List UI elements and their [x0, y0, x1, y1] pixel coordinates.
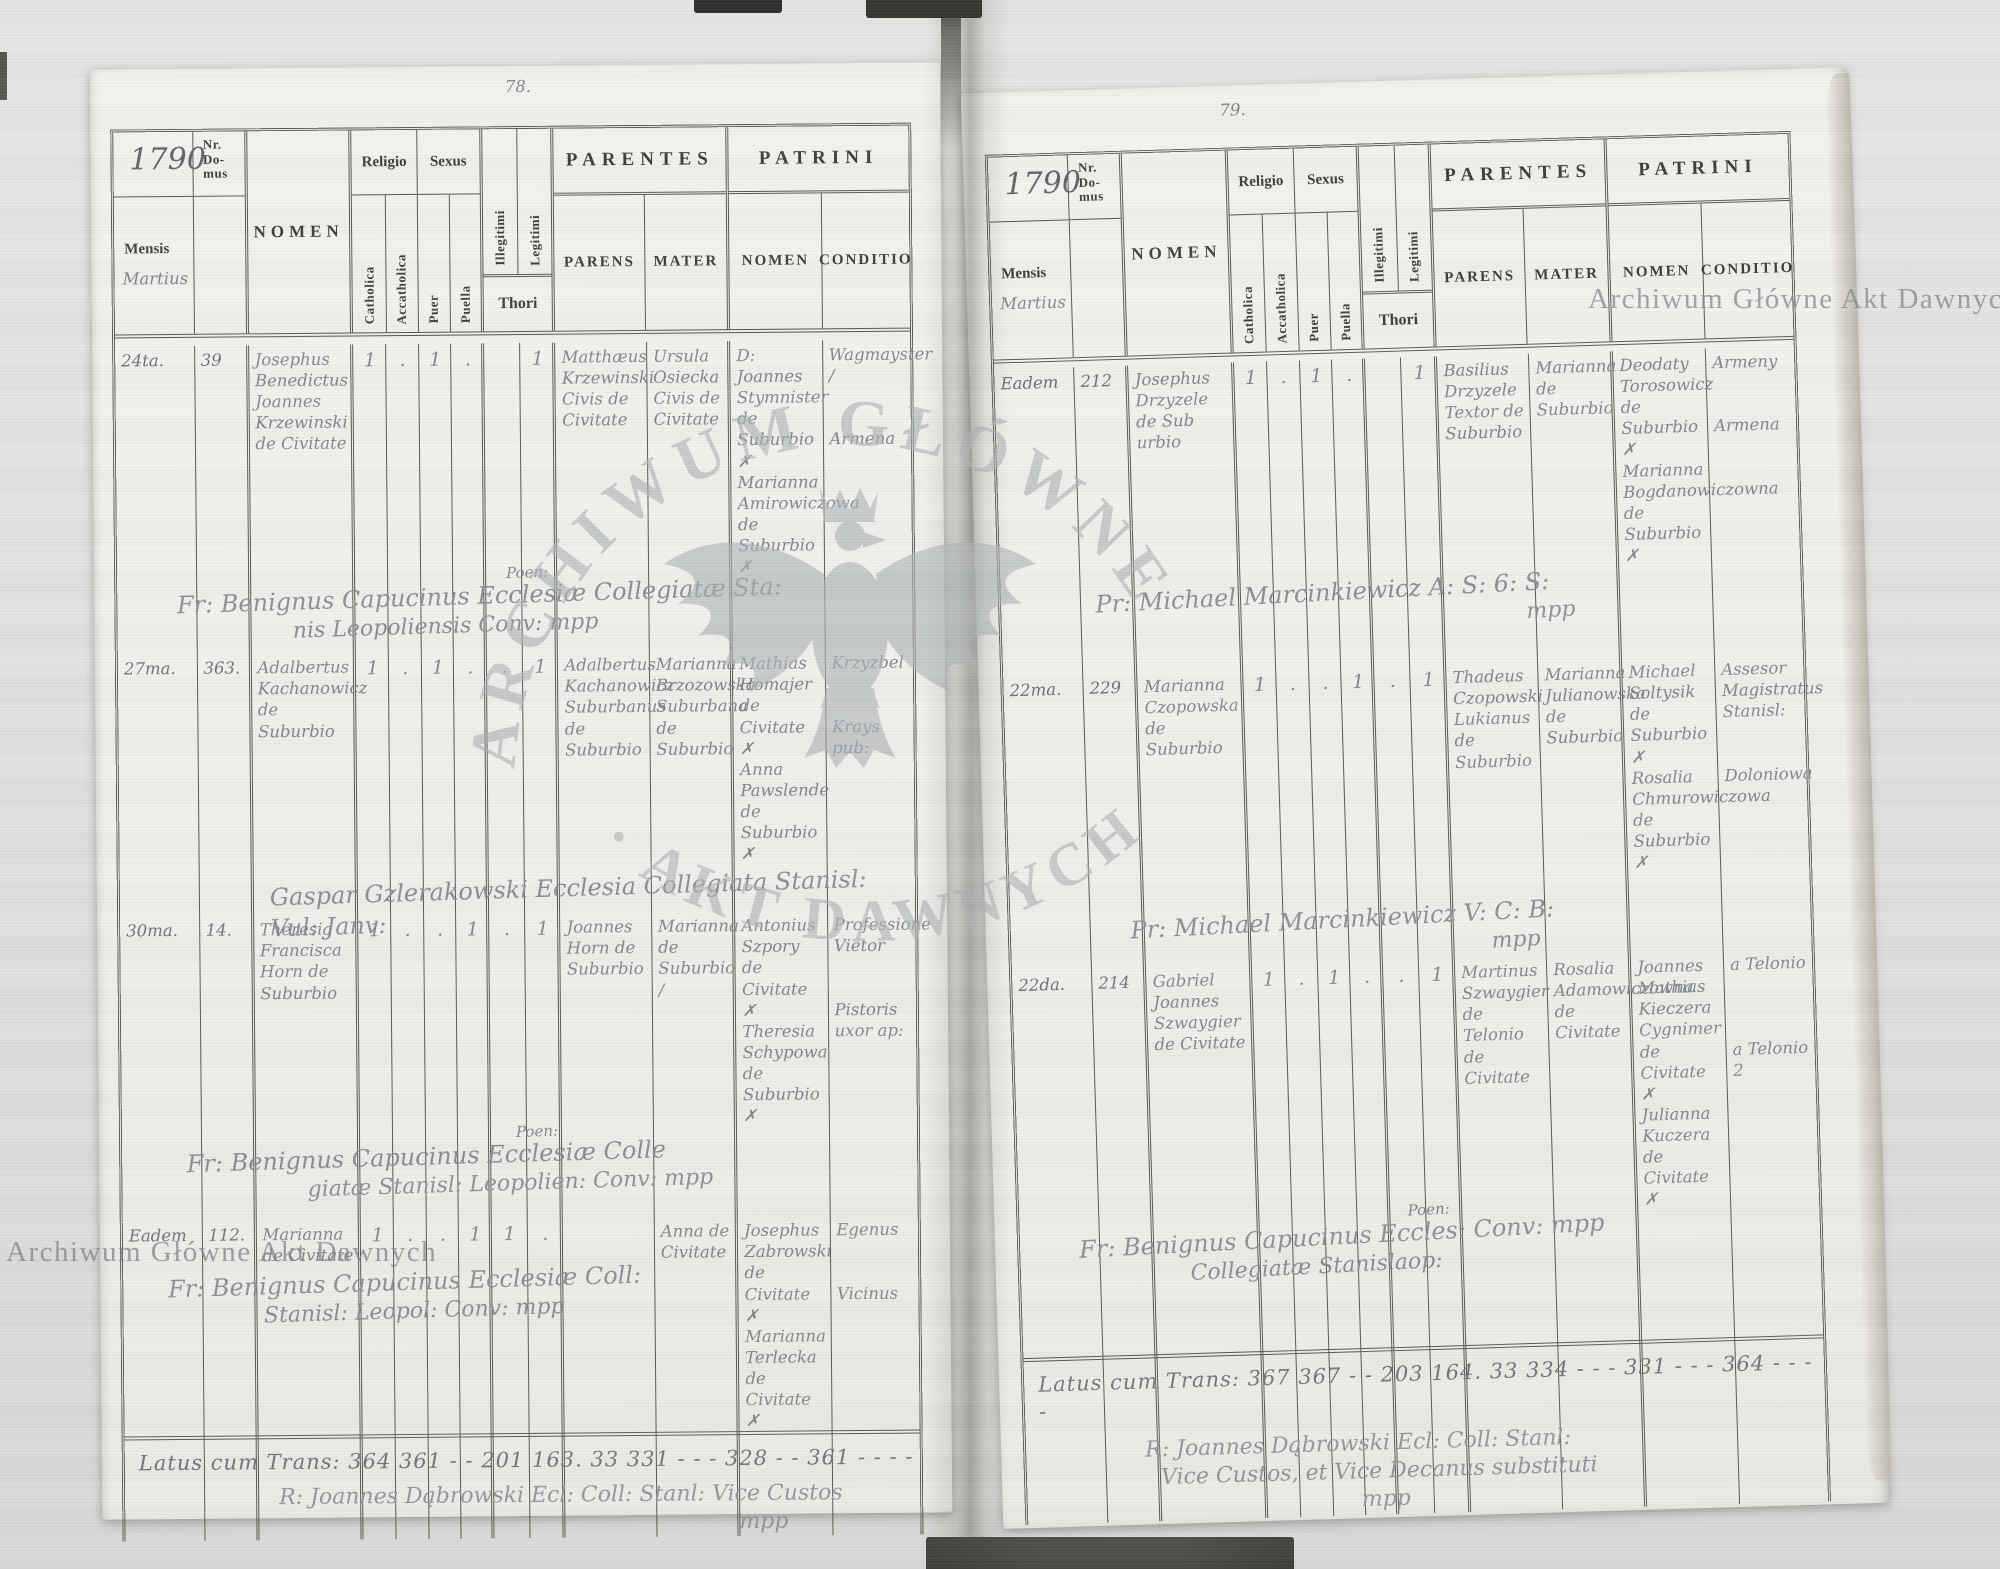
cell-date: 27ma. [118, 654, 199, 877]
cell-illegitimi [484, 343, 522, 580]
binding-clamp-icon [866, 0, 982, 18]
patrini-nomen-label: NOMEN [1623, 263, 1691, 282]
paper-deckle-edge [1825, 73, 1893, 1480]
scan-edge-mark [0, 52, 7, 100]
legitimi-label: Legitimi [1406, 231, 1424, 282]
cell-legitimi: 1 [525, 913, 563, 1138]
header-patrini-group: PATRINI NOMEN CONDITIO [1607, 134, 1794, 341]
cell-nr: 14. [200, 916, 256, 1141]
table-header: 1790 Mensis Martius Nr. Do- mus NOMEN Re… [988, 134, 1794, 364]
latus-summary: Latus cum Trans: 367 367 - - 203 164. 33… [1023, 1335, 1828, 1525]
cell-patrini-nomen: Antonius Szpory de Civitate ✗ Theresia S… [735, 911, 829, 1137]
header-nr-domus: Nr. Do- mus [193, 131, 249, 333]
cell-patrini-nomen: Deodaty Torosowicz de Suburbio ✗ Mariann… [1613, 348, 1712, 566]
accatholica-label: Accatholica [393, 253, 410, 324]
cell-mater: Rosalia Adamowiczowna de Civitate [1547, 953, 1639, 1213]
conditio-label: CONDITIO [819, 252, 913, 270]
cell-illegitimi: . [489, 913, 527, 1138]
cell-mater: Anna de Civitate [655, 1216, 740, 1432]
right-page: 79. 1790 Mensis Martius Nr. Do- mus NOME… [961, 67, 1889, 1529]
cell-parens: Matthæus Krzewinski Civis de Civitate [555, 342, 648, 579]
cell-nr: 229 [1083, 673, 1144, 910]
mater-label: MATER [653, 253, 718, 271]
cell-legitimi: 1 [520, 343, 558, 580]
patrini-nomen-label: NOMEN [742, 252, 810, 270]
cell-accatholica: . [389, 652, 424, 874]
month-handwritten: Martius [122, 268, 193, 290]
cell-date: Eadem [994, 367, 1080, 584]
table-header: 1790 Mensis Martius Nr. Do- mus NOMEN Re… [113, 126, 910, 339]
month-handwritten: Martius [1000, 291, 1072, 314]
cell-mater: Marianna Julianowska de Suburbio [1538, 658, 1629, 895]
cell-parens: Martinus Szwaygier de Telonio de Civitat… [1455, 956, 1555, 1216]
cell-parens: Joannes Horn de Suburbio [560, 912, 653, 1138]
cell-puer: 1 [419, 344, 454, 580]
left-page: 78. 1790 Mensis Martius Nr. Do- mus NOME… [90, 62, 953, 1519]
cell-nr: 214 [1092, 967, 1154, 1226]
cell-catholica: 1 [354, 344, 389, 580]
cell-puella: 1 [459, 1218, 493, 1433]
puer-label: Puer [1306, 313, 1323, 342]
header-parentes-group: PARENTES PARENS MATER [1431, 139, 1613, 346]
latus-summary: Latus cum Trans: 364 361 - - 201 163. 33… [125, 1430, 921, 1542]
cell-illegitimi: 1 [492, 1218, 530, 1433]
header-sexus-group: Sexus Puer Puella [1293, 147, 1365, 351]
cell-patrini-nomen: Mathias Homajer de Civitate ✗ Anna Pawsl… [733, 649, 827, 872]
mensis-label: Mensis [124, 241, 193, 259]
parens-label: PARENS [564, 254, 635, 272]
register-table: 1790 Mensis Martius Nr. Do- mus NOMEN Re… [110, 123, 923, 1542]
cell-legitimi: . [527, 1218, 565, 1433]
header-religio-group: Religio Catholica Accatholica [352, 130, 419, 333]
header-patrini-group: PATRINI NOMEN CONDITIO [728, 126, 909, 330]
cell-nomen: Adalbertus Kachanowicz de Suburbio [251, 653, 358, 876]
cell-conditio: a Telonio a Telonio 2 [1724, 948, 1820, 1208]
cell-nomen: Josephus Benedictus Joannes Krzewinski d… [249, 344, 356, 581]
catholica-label: Catholica [361, 266, 378, 324]
header-date-col: 1790 Mensis Martius [988, 155, 1074, 359]
cell-catholica: 1 [356, 652, 391, 874]
cell-conditio: Assesor Magistratus Stanisl: Doloniowa [1715, 653, 1810, 891]
spine-bottom-band [926, 1537, 1294, 1569]
register-entry: 22da. 214 Gabriel Joannes Szwaygier de C… [1012, 948, 1819, 1229]
puella-label: Puella [1337, 303, 1354, 341]
parens-label: PARENS [1444, 268, 1515, 287]
cell-patrini-nomen: Josephus Zabrowski de Civitate ✗ Mariann… [738, 1216, 832, 1432]
cell-puella: . [454, 651, 489, 873]
legitimi-label: Legitimi [527, 215, 543, 266]
cell-conditio: Egenus Vicinus [830, 1215, 919, 1431]
cell-date: 30ma. [120, 916, 201, 1142]
cell-accatholica: . [391, 914, 426, 1139]
cell-conditio: Armeny Armena [1706, 346, 1800, 564]
cell-parens: Basilius Drzyzele Textor de Suburbio [1437, 354, 1535, 572]
header-nr-domus: Nr. Do- mus [1068, 154, 1128, 358]
catholica-label: Catholica [1240, 286, 1258, 344]
page-number: 78. [505, 76, 531, 97]
cell-parens [563, 1217, 656, 1433]
clerk-mpp: mpp [739, 1507, 920, 1537]
cell-mater: Marianna Brzozowska Suburbana de Suburbi… [650, 649, 735, 872]
header-thori-group: Illegitimi Legitimi Thori [482, 129, 555, 332]
cell-parens: Adalbertus Kachanowicz Suburbanus de Sub… [558, 650, 651, 873]
cell-nomen: Marianna Czopowska de Suburbio [1138, 669, 1251, 907]
spine-top-shadow [941, 0, 961, 150]
cell-nomen: Gabriel Joannes Szwaygier de Civitate [1146, 964, 1259, 1224]
cell-puer: . [426, 1219, 460, 1434]
header-sexus-group: Sexus Puer Puella [417, 129, 484, 332]
cell-parens: Thadeus Czopowski Lukianus de Suburbio [1446, 661, 1545, 899]
cell-mater: Marianna de Suburbio / [652, 911, 737, 1137]
register-entry: 27ma. 363. Adalbertus Kachanowicz de Sub… [118, 648, 915, 877]
cell-conditio: Wagmayster / Armena [823, 340, 912, 577]
cell-catholica: 1 [359, 914, 394, 1139]
illegitimi-label: Illegitimi [492, 211, 508, 267]
clerk-signature: R: Joannes Dąbrowski Ecl: Coll: Stanl: V… [279, 1479, 920, 1513]
cell-patrini-nomen: Michael Soltysik de Suburbio ✗ Rosalia C… [1622, 655, 1722, 893]
signature-row: Poen: Fr: Benignus Capucinus Ecclesiæ Co… [186, 1126, 918, 1229]
cell-nomen: Theresia Francisca Horn de Suburbio [254, 915, 361, 1141]
table-body: Eadem 212 Josephus Drzyzele de Sub urbio… [994, 346, 1828, 1525]
header-nomen: NOMEN [1122, 151, 1234, 356]
mater-label: MATER [1534, 266, 1599, 285]
register-entry: 22ma. 229 Marianna Czopowska de Suburbio… [1003, 653, 1810, 912]
cell-puer: 1 [421, 652, 456, 874]
cell-puer: . [424, 914, 459, 1139]
cell-patrini-nomen: D: Joannes Stymnister de Suburbio ✗ Mari… [730, 340, 824, 577]
accatholica-label: Accatholica [1272, 272, 1290, 343]
cell-date: 22da. [1012, 969, 1100, 1229]
cell-nr: 363. [197, 654, 253, 876]
cell-accatholica: . [386, 344, 421, 580]
mensis-label: Mensis [1001, 264, 1070, 283]
thori-label: Thori [483, 277, 552, 332]
puer-label: Puer [426, 295, 442, 324]
cell-nr: 39 [195, 345, 251, 582]
cell-legitimi: 1 [522, 651, 560, 873]
cell-date: 22ma. [1003, 674, 1090, 911]
register-entry: Eadem 212 Josephus Drzyzele de Sub urbio… [994, 346, 1800, 585]
puella-label: Puella [457, 286, 473, 324]
header-date-col: 1790 Mensis Martius [113, 132, 194, 335]
cell-patrini-nomen: Joannes Mathias Kieczera Cygnimer de Civ… [1631, 950, 1731, 1210]
page-number: 79. [1219, 99, 1246, 121]
conditio-label: CONDITIO [1701, 260, 1795, 280]
header-religio-group: Religio Catholica Accatholica [1228, 149, 1300, 353]
archival-scan: 78. 1790 Mensis Martius Nr. Do- mus NOME… [0, 0, 2000, 1569]
cell-mater: Marianna de Suburbio [1529, 351, 1619, 568]
cell-illegitimi: . [487, 651, 525, 873]
register-table: 1790 Mensis Martius Nr. Do- mus NOMEN Re… [985, 131, 1831, 1525]
latus-line: Latus cum Trans: 364 361 - - 201 163. 33… [139, 1444, 920, 1478]
header-thori-group: Illegitimi Legitimi Thori [1359, 145, 1437, 349]
register-entry: 30ma. 14. Theresia Francisca Horn de Sub… [120, 910, 917, 1142]
binding-clamp-icon [694, 0, 782, 13]
table-body: 24ta. 39 Josephus Benedictus Joannes Krz… [115, 340, 920, 1542]
cell-conditio: Krzyzbel Krays pub: [825, 648, 914, 871]
register-entry: 24ta. 39 Josephus Benedictus Joannes Krz… [115, 340, 912, 583]
cell-puella: 1 [456, 913, 491, 1138]
illegitimi-label: Illegitimi [1370, 227, 1388, 283]
cell-nr: 212 [1074, 366, 1135, 583]
cell-conditio: Professione Vietor Pistoris uxor ap: [828, 910, 917, 1136]
thori-label: Thori [1363, 293, 1434, 349]
header-nomen: NOMEN [247, 130, 354, 333]
cell-nomen: Josephus Drzyzele de Sub urbio [1128, 362, 1240, 580]
cell-mater: Ursula Osiecka Civis de Civitate [647, 341, 733, 578]
header-parentes-group: PARENTES PARENS MATER [554, 127, 731, 331]
cell-accatholica: . [394, 1219, 428, 1434]
cell-date: 24ta. [115, 346, 197, 583]
cell-puella: . [451, 343, 486, 579]
